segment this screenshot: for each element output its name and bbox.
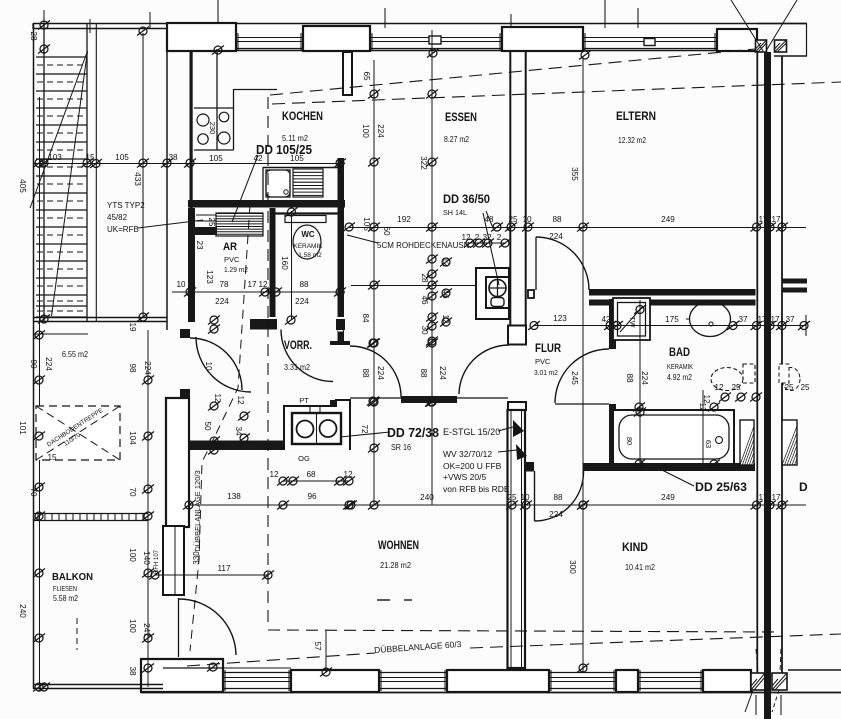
svg-text:38: 38 [128, 666, 137, 676]
svg-text:140: 140 [142, 551, 151, 565]
svg-text:105: 105 [209, 154, 223, 163]
svg-text:PVC: PVC [224, 255, 240, 264]
svg-text:230: 230 [208, 122, 217, 135]
svg-text:90: 90 [29, 359, 38, 369]
svg-text:PT: PT [299, 396, 309, 405]
svg-text:88: 88 [553, 493, 563, 502]
svg-text:25: 25 [731, 383, 741, 392]
svg-text:224: 224 [143, 361, 152, 375]
svg-text:72: 72 [360, 424, 369, 434]
svg-text:28: 28 [420, 273, 429, 283]
svg-text:17: 17 [758, 493, 768, 502]
svg-text:240: 240 [420, 493, 434, 502]
svg-text:330: 330 [192, 551, 201, 565]
svg-text:12: 12 [236, 395, 245, 405]
svg-text:28: 28 [29, 31, 38, 41]
svg-text:BAD: BAD [669, 347, 690, 359]
svg-text:32: 32 [482, 233, 492, 242]
svg-text:17: 17 [771, 493, 781, 502]
svg-text:224: 224 [549, 510, 563, 519]
svg-text:50: 50 [203, 421, 212, 431]
svg-text:60: 60 [382, 226, 391, 236]
svg-text:25: 25 [207, 217, 216, 227]
svg-text:E-STGL 15/20: E-STGL 15/20 [443, 427, 500, 437]
svg-text:84: 84 [361, 313, 370, 323]
svg-text:+VWS 20/5: +VWS 20/5 [443, 472, 487, 482]
svg-text:10: 10 [204, 361, 213, 371]
svg-text:123: 123 [205, 270, 214, 284]
svg-text:57: 57 [313, 641, 322, 651]
svg-text:OG: OG [298, 454, 310, 463]
svg-text:224: 224 [44, 357, 53, 371]
svg-text:2: 2 [497, 233, 502, 242]
svg-text:12: 12 [714, 383, 724, 392]
svg-text:249: 249 [661, 493, 675, 502]
svg-text:105: 105 [362, 217, 371, 231]
svg-text:224: 224 [376, 366, 385, 380]
svg-text:12: 12 [441, 314, 450, 324]
svg-text:224: 224 [640, 371, 649, 385]
svg-text:103: 103 [48, 153, 62, 162]
svg-text:TW: TW [628, 317, 635, 328]
svg-text:70: 70 [128, 487, 137, 497]
svg-text:88: 88 [552, 215, 562, 224]
svg-text:KERAMIK: KERAMIK [293, 243, 323, 250]
svg-text:WV 32/70/12: WV 32/70/12 [443, 449, 492, 459]
svg-text:KIND: KIND [622, 542, 648, 554]
svg-text:247: 247 [142, 623, 151, 637]
svg-text:17: 17 [758, 215, 768, 224]
svg-text:240: 240 [18, 604, 27, 618]
svg-text:160: 160 [280, 256, 289, 270]
svg-text:WC: WC [301, 230, 315, 239]
svg-text:68: 68 [306, 470, 316, 479]
svg-text:100: 100 [128, 548, 137, 562]
svg-text:42: 42 [253, 154, 263, 163]
svg-text:12: 12 [441, 257, 450, 267]
svg-text:96: 96 [307, 492, 317, 501]
svg-text:34: 34 [234, 426, 243, 436]
svg-text:12: 12 [343, 470, 353, 479]
svg-text:70: 70 [29, 487, 38, 497]
svg-text:192: 192 [397, 215, 411, 224]
svg-text:38: 38 [168, 153, 178, 162]
svg-text:10: 10 [522, 215, 532, 224]
svg-text:48: 48 [484, 215, 494, 224]
svg-text:224: 224 [549, 232, 563, 241]
svg-text:224: 224 [215, 297, 229, 306]
svg-text:DÜBBELANLAGE 120/3: DÜBBELANLAGE 120/3 [193, 470, 202, 551]
svg-text:17: 17 [247, 280, 257, 289]
svg-text:D: D [799, 480, 808, 494]
svg-text:KERAMIK: KERAMIK [667, 362, 693, 371]
svg-text:ELTERN: ELTERN [616, 109, 656, 123]
svg-text:88: 88 [361, 368, 370, 378]
svg-text:224: 224 [295, 297, 309, 306]
svg-text:100: 100 [361, 124, 370, 138]
svg-text:10: 10 [176, 280, 186, 289]
svg-text:DD 36/50: DD 36/50 [443, 192, 490, 206]
svg-text:30: 30 [420, 325, 429, 335]
svg-text:BALKON: BALKON [52, 571, 93, 583]
svg-text:405: 405 [18, 179, 27, 193]
svg-text:98: 98 [128, 363, 137, 373]
svg-text:DD 72/38: DD 72/38 [387, 426, 439, 440]
svg-text:OK=200 U FFB: OK=200 U FFB [443, 461, 502, 471]
svg-text:WOHNEN: WOHNEN [378, 538, 419, 552]
svg-text:12: 12 [461, 233, 471, 242]
svg-text:63: 63 [704, 440, 713, 448]
svg-text:2: 2 [475, 233, 480, 242]
svg-text:78: 78 [219, 280, 229, 289]
svg-text:von RFB bis RDE: von RFB bis RDE [443, 484, 510, 494]
svg-text:19: 19 [128, 322, 137, 332]
svg-text:FLIESEN: FLIESEN [53, 584, 77, 593]
svg-text:101: 101 [18, 421, 27, 435]
svg-text:25: 25 [508, 215, 518, 224]
svg-text:45/82: 45/82 [107, 213, 128, 222]
svg-text:AR: AR [223, 241, 237, 253]
svg-text:322: 322 [419, 156, 428, 170]
svg-text:YTS TYP2: YTS TYP2 [107, 201, 145, 210]
svg-text:25: 25 [784, 383, 794, 392]
svg-text:355: 355 [570, 167, 579, 181]
svg-text:KOCHEN: KOCHEN [282, 109, 323, 123]
svg-text:12: 12 [702, 394, 711, 404]
svg-text:42: 42 [601, 315, 611, 324]
svg-text:100: 100 [128, 619, 137, 633]
svg-text:224: 224 [376, 124, 385, 138]
svg-text:PVC: PVC [535, 357, 551, 366]
svg-text:37: 37 [738, 315, 748, 324]
svg-text:17: 17 [771, 215, 781, 224]
svg-text:15: 15 [47, 453, 57, 462]
svg-text:FLUR: FLUR [535, 343, 562, 355]
svg-text:4.92 m2: 4.92 m2 [667, 373, 692, 382]
svg-text:15: 15 [85, 153, 95, 162]
svg-text:138: 138 [227, 492, 241, 501]
svg-text:175: 175 [665, 315, 679, 324]
svg-text:5.11 m2: 5.11 m2 [282, 133, 308, 143]
svg-text:25: 25 [507, 493, 517, 502]
svg-text:17: 17 [770, 315, 780, 324]
svg-text:12: 12 [258, 280, 268, 289]
svg-text:1.58 m2: 1.58 m2 [298, 252, 322, 259]
svg-text:UK=RFB: UK=RFB [107, 225, 139, 234]
svg-text:21.28 m2: 21.28 m2 [380, 560, 411, 570]
svg-text:123: 123 [553, 314, 567, 323]
svg-text:10.41 m2: 10.41 m2 [625, 562, 655, 572]
svg-text:245: 245 [570, 371, 579, 385]
svg-text:17: 17 [757, 315, 767, 324]
svg-text:65: 65 [362, 71, 371, 81]
svg-text:300: 300 [568, 560, 577, 574]
svg-text:37: 37 [785, 315, 795, 324]
svg-text:5CM ROHDECKENAUSN.: 5CM ROHDECKENAUSN. [377, 241, 472, 250]
svg-text:ESSEN: ESSEN [445, 110, 477, 124]
svg-text:88: 88 [299, 280, 309, 289]
svg-text:80: 80 [625, 437, 634, 445]
svg-text:104: 104 [128, 431, 137, 445]
svg-text:12: 12 [698, 402, 707, 412]
svg-text:SH 14L: SH 14L [443, 208, 467, 217]
svg-text:12: 12 [269, 470, 279, 479]
svg-text:DD 25/63: DD 25/63 [695, 480, 747, 494]
svg-text:8.27 m2: 8.27 m2 [444, 134, 469, 144]
svg-text:224: 224 [438, 366, 447, 380]
svg-text:3.01 m2: 3.01 m2 [534, 368, 558, 377]
svg-text:25: 25 [800, 383, 810, 392]
svg-text:23: 23 [195, 240, 204, 250]
svg-text:10: 10 [520, 493, 530, 502]
svg-text:117: 117 [217, 564, 230, 573]
svg-text:105: 105 [115, 153, 129, 162]
svg-text:5.58 m2: 5.58 m2 [53, 594, 78, 603]
svg-text:12: 12 [213, 393, 222, 403]
svg-text:88: 88 [419, 368, 428, 378]
svg-text:VORR.: VORR. [284, 340, 312, 352]
svg-text:46: 46 [420, 295, 429, 305]
svg-text:SR 16: SR 16 [391, 442, 411, 452]
svg-text:1.29 m2: 1.29 m2 [224, 265, 248, 274]
svg-text:46: 46 [441, 289, 450, 299]
svg-text:3.31 m2: 3.31 m2 [284, 362, 310, 372]
svg-text:12.32 m2: 12.32 m2 [618, 135, 646, 145]
svg-text:88: 88 [625, 373, 634, 383]
svg-text:433: 433 [133, 172, 142, 186]
svg-text:6.55 m2: 6.55 m2 [62, 349, 88, 359]
svg-text:249: 249 [661, 215, 675, 224]
svg-text:105: 105 [290, 154, 304, 163]
svg-text:RFH 107: RFH 107 [154, 549, 160, 574]
